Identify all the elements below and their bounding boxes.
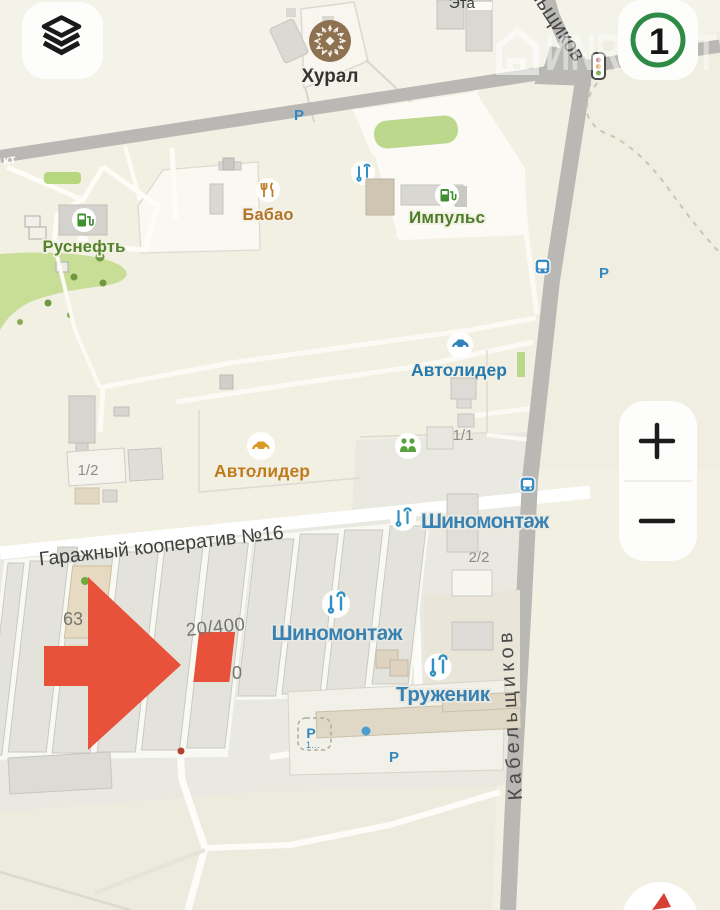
svg-text:Руснефть: Руснефть bbox=[43, 237, 126, 256]
svg-text:Автолидер: Автолидер bbox=[214, 461, 310, 481]
svg-text:0: 0 bbox=[232, 663, 242, 683]
svg-text:1…: 1… bbox=[306, 740, 320, 750]
svg-text:1/1: 1/1 bbox=[453, 427, 474, 444]
svg-text:кт: кт bbox=[2, 151, 17, 168]
svg-text:Импульс: Импульс bbox=[409, 208, 485, 227]
svg-text:1: 1 bbox=[649, 21, 670, 62]
svg-text:Шиномонтаж: Шиномонтаж bbox=[421, 510, 550, 533]
svg-text:Труженик: Труженик bbox=[396, 683, 491, 706]
svg-text:Р: Р bbox=[599, 265, 609, 282]
svg-text:Р: Р bbox=[306, 725, 315, 741]
svg-text:Автолидер: Автолидер bbox=[411, 360, 507, 380]
svg-text:Бабао: Бабао bbox=[243, 206, 294, 224]
svg-text:1/2: 1/2 bbox=[78, 462, 99, 479]
svg-text:Р: Р bbox=[389, 749, 399, 766]
svg-text:Р: Р bbox=[294, 107, 304, 124]
svg-text:63: 63 bbox=[63, 609, 83, 629]
svg-text:Хурал: Хурал bbox=[302, 66, 359, 87]
svg-text:Шиномонтаж: Шиномонтаж bbox=[272, 622, 404, 645]
svg-text:Эта: Эта bbox=[449, 0, 475, 12]
